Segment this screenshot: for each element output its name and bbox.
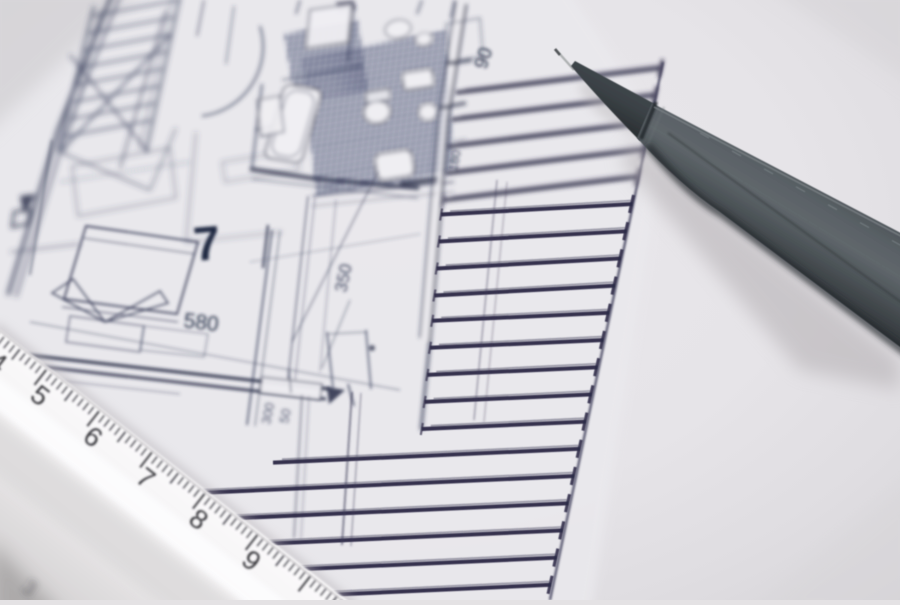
svg-text:7: 7 (191, 217, 222, 272)
svg-text:50: 50 (276, 407, 294, 424)
svg-text:580: 580 (182, 309, 220, 336)
